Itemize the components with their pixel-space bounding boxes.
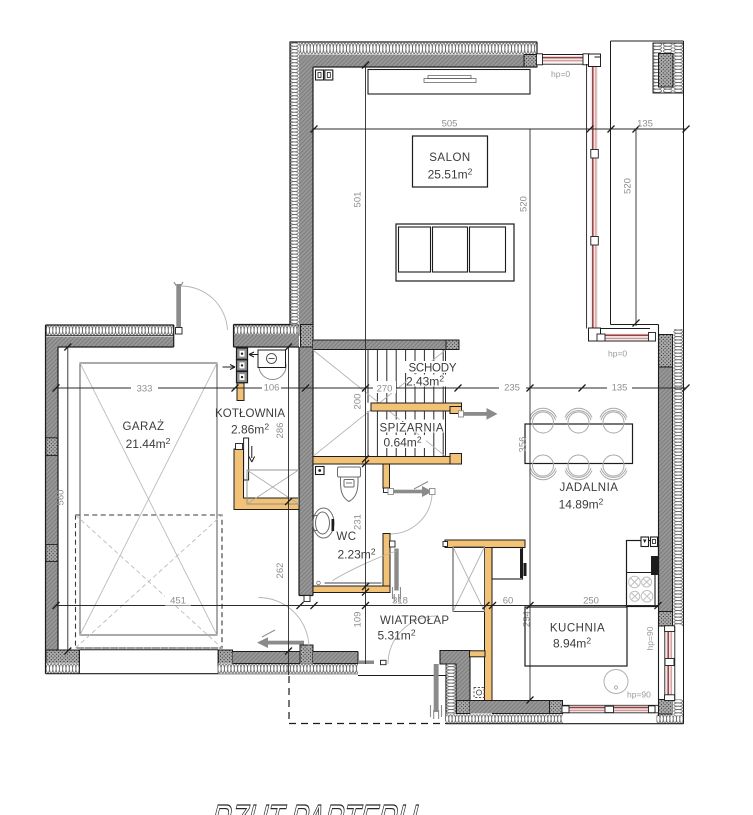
svg-text:270: 270 (377, 384, 393, 395)
svg-text:520: 520 (623, 178, 634, 194)
svg-text:2.23m2: 2.23m2 (337, 547, 375, 562)
svg-text:RZUT PARTERU: RZUT PARTERU (205, 796, 423, 815)
svg-text:520: 520 (519, 196, 530, 212)
svg-text:2.86m2: 2.86m2 (231, 422, 269, 437)
svg-text:231: 231 (353, 514, 364, 530)
svg-text:333: 333 (137, 384, 153, 395)
svg-text:235: 235 (504, 383, 520, 394)
svg-text:501: 501 (353, 192, 364, 208)
svg-text:505: 505 (442, 119, 458, 130)
svg-text:0.64m2: 0.64m2 (383, 435, 421, 450)
svg-text:106: 106 (264, 383, 280, 394)
svg-text:135: 135 (612, 383, 628, 394)
svg-text:SCHODY: SCHODY (409, 363, 457, 375)
svg-text:200: 200 (353, 394, 364, 410)
svg-text:250: 250 (583, 596, 599, 607)
svg-text:GARAŻ: GARAŻ (122, 420, 164, 433)
svg-text:318: 318 (392, 596, 408, 607)
svg-text:SALON: SALON (429, 152, 471, 164)
svg-text:5.31m2: 5.31m2 (377, 628, 415, 643)
svg-text:262: 262 (275, 563, 286, 579)
svg-text:hp=0: hp=0 (551, 69, 570, 79)
svg-text:14.89m2: 14.89m2 (559, 497, 604, 512)
svg-text:25.51m2: 25.51m2 (428, 167, 473, 182)
svg-text:60: 60 (503, 596, 514, 607)
svg-text:KOTŁOWNIA: KOTŁOWNIA (215, 408, 285, 420)
svg-text:560: 560 (56, 490, 67, 506)
svg-text:286: 286 (275, 423, 286, 439)
svg-text:2.43m2: 2.43m2 (406, 374, 444, 389)
svg-text:SPIŻARNIA: SPIŻARNIA (380, 422, 444, 435)
svg-text:WC: WC (336, 531, 356, 543)
svg-text:135: 135 (637, 119, 653, 130)
svg-text:294: 294 (522, 611, 533, 627)
svg-text:hp=90: hp=90 (627, 690, 651, 700)
svg-text:356: 356 (518, 437, 529, 453)
svg-text:8.94m2: 8.94m2 (553, 636, 591, 651)
svg-text:21.44m2: 21.44m2 (126, 436, 171, 451)
svg-text:hp=0: hp=0 (608, 349, 627, 359)
svg-text:451: 451 (170, 596, 186, 607)
svg-text:WIATROŁAP: WIATROŁAP (380, 615, 449, 627)
svg-text:KUCHNIA: KUCHNIA (550, 623, 605, 635)
svg-text:109: 109 (353, 612, 364, 628)
svg-text:JADALNIA: JADALNIA (560, 482, 619, 494)
svg-text:hp=90: hp=90 (645, 626, 655, 650)
